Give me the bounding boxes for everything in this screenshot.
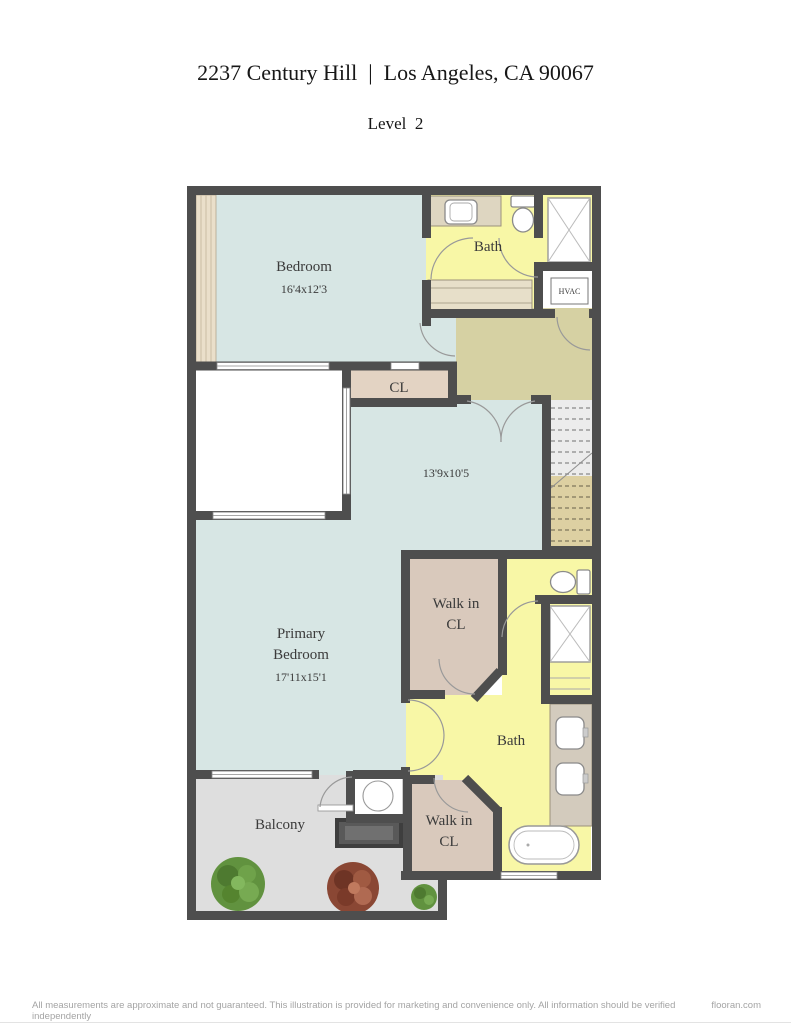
- washer-fixture: [353, 777, 403, 815]
- walkin-lower-label-2: CL: [439, 834, 458, 850]
- open-void: [196, 370, 342, 511]
- plant-green-large: [211, 857, 265, 911]
- toilet-fixture-top: [511, 196, 535, 232]
- toilet-fixture-lower: [551, 570, 591, 594]
- balcony-label: Balcony: [255, 817, 305, 833]
- footer: All measurements are approximate and not…: [32, 1000, 761, 1022]
- bottom-divider: [0, 1022, 791, 1023]
- plant-red-large: [327, 862, 379, 914]
- hall-floor: [450, 308, 596, 404]
- bathtub-fixture: [509, 826, 579, 864]
- balcony-door-leaf: [318, 805, 353, 811]
- floor-plan: Bedroom 16'4x12'3 Bath HVAC CL 13'9x10'5…: [187, 186, 601, 925]
- primary-bedroom-label-2: Bedroom: [273, 647, 329, 663]
- window-void-right: [343, 388, 350, 494]
- double-vanity: [550, 704, 592, 826]
- bedroom-floor: [192, 191, 426, 367]
- hvac-label: HVAC: [559, 287, 581, 296]
- shower-stall-top: [548, 198, 590, 262]
- closet-label: CL: [389, 380, 408, 396]
- primary-bedroom-dims: 17'11x15'1: [275, 670, 327, 684]
- window-bath-lower: [501, 872, 557, 879]
- sink-counter: [427, 196, 501, 226]
- bath-lower-label: Bath: [497, 733, 526, 749]
- walkin-upper-label-2: CL: [446, 617, 465, 633]
- loft-dims: 13'9x10'5: [423, 466, 469, 480]
- bedroom-dims: 16'4x12'3: [281, 282, 327, 296]
- disclaimer-text: All measurements are approximate and not…: [32, 1000, 697, 1022]
- primary-bedroom-label-1: Primary: [277, 626, 326, 642]
- closet-door-opening: [391, 363, 419, 370]
- bath-top-label: Bath: [474, 239, 503, 255]
- window-void-bottom: [213, 512, 325, 519]
- level-subtitle: Level 2: [0, 114, 791, 134]
- walkin-upper-label-1: Walk in: [433, 596, 480, 612]
- built-in-counter: [428, 280, 532, 310]
- brand-text: flooran.com: [711, 1000, 761, 1011]
- plant-green-small: [411, 884, 437, 910]
- stairs-upper-flight: [551, 400, 592, 476]
- walkin-lower-label-1: Walk in: [426, 813, 473, 829]
- wardrobe-panel: [196, 195, 216, 363]
- bedroom-label: Bedroom: [276, 259, 332, 275]
- window-primary-bedroom: [212, 771, 312, 778]
- stairs-lower-flight: [551, 476, 592, 551]
- planter-box: [337, 820, 401, 846]
- floorplan-page: 2237 Century Hill | Los Angeles, CA 9006…: [0, 0, 791, 1024]
- page-title: 2237 Century Hill | Los Angeles, CA 9006…: [0, 60, 791, 86]
- window-bedroom-void: [217, 363, 329, 370]
